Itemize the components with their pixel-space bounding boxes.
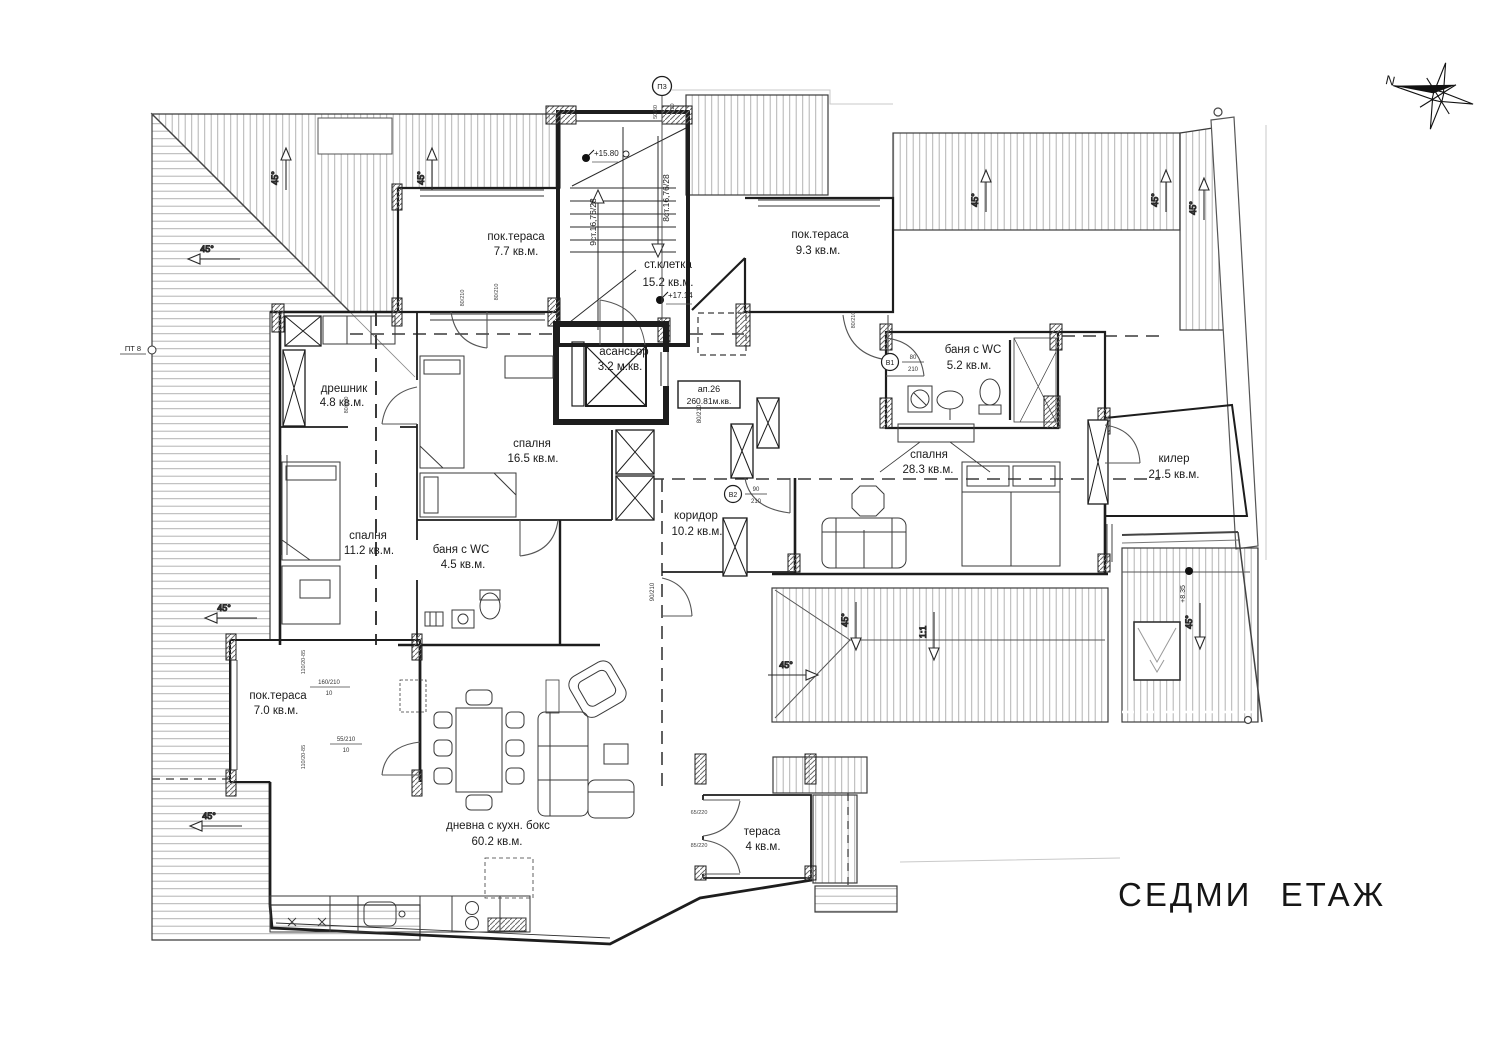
room-label-bedroom283: спалня bbox=[910, 449, 948, 461]
slope-label: 45° bbox=[270, 171, 280, 185]
room-label-closet: дрешник bbox=[321, 383, 369, 395]
room-label-kiler: килер bbox=[1159, 453, 1190, 465]
apartment-number: ап.26 bbox=[698, 384, 720, 394]
room-area-stairwell: 15.2 кв.м. bbox=[642, 277, 693, 289]
dim-80-210: 80/210 bbox=[494, 284, 500, 301]
svg-text:55/210: 55/210 bbox=[337, 737, 356, 743]
slope-label: 45° bbox=[1150, 193, 1160, 207]
dim-80-210c: 80/210 bbox=[344, 397, 350, 414]
elevation-label: +8.35 bbox=[1180, 585, 1187, 603]
stair-run-right: 8ст.16,76/28 bbox=[661, 174, 671, 222]
room-label-terrace93: пок.тераса bbox=[791, 229, 849, 241]
room-area-kiler: 21.5 кв.м. bbox=[1148, 469, 1199, 481]
svg-text:160/210: 160/210 bbox=[318, 680, 340, 686]
slope-label: 45° bbox=[970, 193, 980, 207]
room-label-corridor: коридор bbox=[674, 510, 718, 522]
marker-b1-den: 210 bbox=[908, 367, 919, 373]
slope-label: 45° bbox=[200, 244, 214, 254]
room-area-bath52: 5.2 кв.м. bbox=[947, 360, 992, 372]
elevation-label: +17.14 bbox=[668, 291, 693, 300]
dim-110b: 110/20-85 bbox=[301, 745, 307, 769]
roof-top-strip2 bbox=[893, 133, 1180, 230]
apartment-area: 260.81м.кв. bbox=[687, 396, 732, 406]
marker-b2-label: В2 bbox=[729, 492, 738, 499]
dim-window-55: 55/210 10 bbox=[330, 737, 362, 754]
room-label-terrace77: пок.тераса bbox=[487, 231, 545, 243]
roof-top-strip1 bbox=[686, 95, 828, 195]
dim-80-210b: 80/210 bbox=[460, 290, 466, 307]
slope-label: 45° bbox=[416, 171, 426, 185]
slope-label: 45° bbox=[1184, 615, 1194, 629]
room-area-bath45: 4.5 кв.м. bbox=[441, 559, 486, 571]
room-label-bedroom112: спалня bbox=[349, 530, 387, 542]
room-area-bedroom283: 28.3 кв.м. bbox=[902, 464, 953, 476]
room-area-terrace93: 9.3 кв.м. bbox=[796, 245, 841, 257]
room-label-living: дневна с кухн. бокс bbox=[446, 820, 550, 832]
stair-run-labels: 9ст.16,76/28 8ст.16,76/28 bbox=[588, 174, 671, 246]
page-title: СЕДМИ ЕТАЖ bbox=[1118, 876, 1386, 913]
marker-b1-label: В1 bbox=[886, 360, 895, 367]
marker-b2-num: 90 bbox=[753, 487, 760, 493]
marker-p3-dim2: 120 bbox=[670, 103, 676, 112]
slope-label: 45° bbox=[779, 660, 793, 670]
dim-door-80: 80/210 bbox=[697, 404, 703, 423]
dim-window-160: 160/210 10 bbox=[310, 680, 350, 697]
compass-rose: N bbox=[1384, 53, 1481, 138]
floor-plan-page: 45° 45° 45° 45° 45° 45° 45° 45° 45° 1:1 … bbox=[0, 0, 1500, 1061]
dim-65-220: 65/220 bbox=[691, 810, 708, 816]
marker-b2: В2 90 210 bbox=[725, 486, 768, 506]
room-area-terrace77: 7.7 кв.м. bbox=[494, 246, 539, 258]
marker-p3-dim1: 50/80 bbox=[653, 105, 659, 119]
elevator bbox=[556, 324, 669, 422]
dim-110: 110/20-85 bbox=[301, 650, 307, 674]
room-area-corridor: 10.2 кв.м. bbox=[671, 526, 722, 538]
roof-right-bar bbox=[1211, 117, 1258, 549]
elevation-1580: +15.80 bbox=[582, 149, 619, 162]
room-area-terrace4: 4 кв.м. bbox=[745, 841, 780, 853]
marker-p3-label: П3 bbox=[657, 82, 667, 91]
room-label-bedroom165: спалня bbox=[513, 438, 551, 450]
roof-midbottom bbox=[772, 588, 1108, 722]
room-area-closet: 4.8 кв.м. bbox=[320, 397, 365, 409]
svg-text:10: 10 bbox=[343, 748, 350, 754]
dim-80-210d: 80/210 bbox=[851, 312, 857, 329]
slope-label: 45° bbox=[1188, 201, 1198, 215]
room-area-bedroom165: 16.5 кв.м. bbox=[507, 453, 558, 465]
svg-text:10: 10 bbox=[326, 691, 333, 697]
room-area-terrace70: 7.0 кв.м. bbox=[254, 705, 299, 717]
room-label-bath52: баня с WC bbox=[945, 344, 1002, 356]
marker-pt8-label: ПТ 8 bbox=[125, 344, 141, 353]
room-label-terrace70: пок.тераса bbox=[249, 690, 307, 702]
slope-label: 45° bbox=[217, 603, 231, 613]
room-area-elevator: 3.2 м.кв. bbox=[598, 361, 643, 373]
room-label-stairwell: ст.клетка bbox=[644, 259, 692, 271]
slope-label: 45° bbox=[840, 613, 850, 627]
room-label-elevator: асансьор bbox=[599, 346, 648, 358]
marker-pt8: ПТ 8 bbox=[120, 344, 156, 354]
slope-ratio-label: 1:1 bbox=[918, 626, 928, 639]
stair-run-left: 9ст.16,76/28 bbox=[588, 198, 598, 246]
marker-b2-den: 210 bbox=[751, 499, 762, 505]
room-area-living: 60.2 кв.м. bbox=[471, 836, 522, 848]
apartment-info-box: ап.26 260.81м.кв. bbox=[678, 381, 740, 408]
room-area-bedroom112: 11.2 кв.м. bbox=[344, 545, 394, 557]
slope-label: 45° bbox=[202, 811, 216, 821]
marker-b1-num: 80 bbox=[910, 355, 917, 361]
floor-plan-drawing: 45° 45° 45° 45° 45° 45° 45° 45° 45° 1:1 … bbox=[0, 0, 1500, 1061]
dim-85-220: 85/220 bbox=[691, 843, 708, 849]
room-label-terrace4: тераса bbox=[744, 826, 781, 838]
elevation-label: +15.80 bbox=[594, 149, 619, 158]
dim-door-90: 90/210 bbox=[650, 582, 656, 601]
room-label-bath45: баня с WC bbox=[433, 544, 490, 556]
